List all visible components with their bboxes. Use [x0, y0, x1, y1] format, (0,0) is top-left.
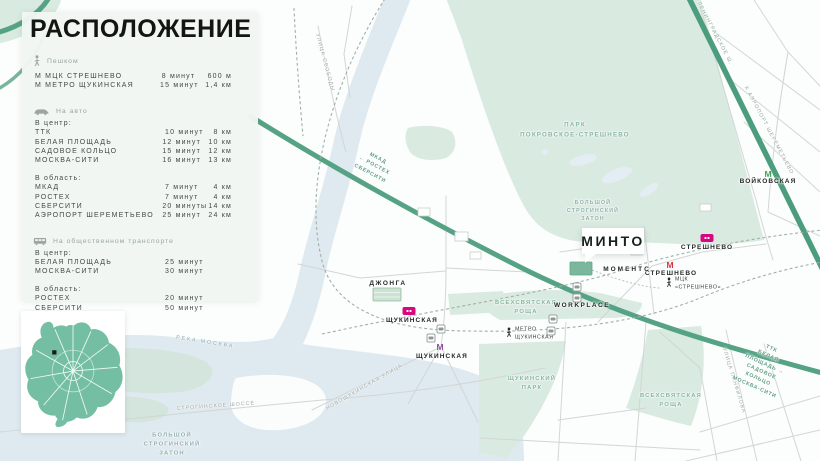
- bus-stop-icon: [437, 325, 446, 334]
- group-label: В область:: [22, 286, 258, 295]
- travel-row: БЕЛАЯ ПЛОЩАДЬ 12 минут 10 км: [22, 139, 258, 148]
- section-header-transit: На общественном транспорте: [22, 237, 258, 246]
- pedestrian-icon: [666, 275, 673, 293]
- section-label: На авто: [56, 108, 88, 115]
- bus-icon: [33, 237, 47, 246]
- group-label: В центр:: [22, 120, 258, 129]
- area-label-park-pokrovskoe: ПАРК ПОКРОВСКОЕ-СТРЕШНЕВО: [520, 120, 630, 139]
- station-label-mck-streshnevo-walk: МЦК «СТРЕШНЕВО»: [675, 276, 721, 291]
- bus-stop-icon: [547, 327, 556, 336]
- location-map-page: ПАРК ПОКРОВСКОЕ-СТРЕШНЕВО БОЛЬШОЙ СТРОГИ…: [0, 0, 820, 461]
- bus-stop-icon: [549, 315, 558, 324]
- travel-row: СБЕРСИТИ 20 минуты 14 км: [22, 203, 258, 212]
- section-label: Пешком: [47, 58, 79, 65]
- place-label-workplace: WORKPLACE: [554, 301, 610, 311]
- minto-building: [570, 262, 592, 275]
- metro-icon-shchukinskaya: М: [436, 343, 443, 352]
- travel-row: АЭРОПОРТ ШЕРЕМЕТЬЕВО 25 минут 24 км: [22, 212, 258, 221]
- section-label: На общественном транспорте: [53, 238, 174, 245]
- travel-row: РОСТЕХ 7 минут 4 км: [22, 194, 258, 203]
- moscow-silhouette: [21, 311, 125, 433]
- section-header-walk: Пешком: [22, 55, 258, 67]
- group-label: В центр:: [22, 250, 258, 259]
- page-title: РАСПОЛОЖЕНИЕ: [30, 17, 258, 42]
- travel-row: РОСТЕХ 20 минут: [22, 295, 258, 304]
- dzhonga-building: [373, 288, 401, 301]
- travel-row: МКАД 7 минут 4 км: [22, 184, 258, 193]
- place-label-dzhonga: ДЖОНГА: [369, 279, 406, 289]
- car-icon: [33, 107, 50, 116]
- bus-stop-icon: [573, 294, 582, 303]
- metro-icon-streshnevo-mck: М: [666, 261, 673, 270]
- station-label-voykovskaya: ВОЙКОВСКАЯ: [740, 177, 797, 187]
- travel-row: М МЦК СТРЕШНЕВО 8 минут 600 м: [22, 73, 258, 82]
- pedestrian-icon: [33, 55, 41, 67]
- minto-callout: МИНТО: [582, 228, 644, 254]
- area-label-shchukinsky-park: ЩУКИНСКИЙ ПАРК: [508, 375, 556, 393]
- station-label-shchukinskaya-d2: ЩУКИНСКАЯ: [386, 316, 438, 326]
- rail-station-icon-shchukinskaya: [403, 307, 416, 315]
- moscow-overview-minimap: [21, 311, 125, 433]
- area-label-zaton-bottom: БОЛЬШОЙ СТРОГИНСКИЙ ЗАТОН: [144, 432, 201, 459]
- travel-row: ТТК 10 минут 8 км: [22, 129, 258, 138]
- bus-stop-icon: [573, 283, 582, 292]
- rail-station-icon-streshnevo: [701, 234, 714, 242]
- bus-stop-icon: [427, 334, 436, 343]
- minto-callout-label: МИНТО: [581, 233, 644, 249]
- group-label: В область:: [22, 175, 258, 184]
- area-label-zaton-top: БОЛЬШОЙ СТРОГИНСКИЙ ЗАТОН: [567, 199, 619, 223]
- travel-row: М МЕТРО ЩУКИНСКАЯ 15 минут 1,4 км: [22, 82, 258, 91]
- station-label-shchukinskaya-metro: ЩУКИНСКАЯ: [416, 352, 468, 362]
- area-label-vsekhsvyatskaya-2: ВСЕХСВЯТСКАЯ РОЩА: [640, 392, 702, 410]
- travel-row: БЕЛАЯ ПЛОЩАДЬ 25 минут: [22, 259, 258, 268]
- travel-row: МОСКВА-СИТИ 30 минут: [22, 268, 258, 277]
- travel-row: МОСКВА-СИТИ 16 минут 13 км: [22, 157, 258, 166]
- area-label-vsekhsvyatskaya-1: ВСЕХСВЯТСКАЯ РОЩА: [495, 299, 557, 317]
- location-info-panel: РАСПОЛОЖЕНИЕ Пешком М МЦК СТРЕШНЕВО 8 ми…: [22, 12, 258, 301]
- section-header-auto: На авто: [22, 107, 258, 116]
- travel-row: САДОВОЕ КОЛЬЦО 15 минут 12 км: [22, 148, 258, 157]
- station-label-streshnevo-d2: СТРЕШНЕВО: [681, 243, 733, 253]
- pedestrian-icon: [506, 325, 513, 343]
- place-label-moments: МОМЕНТС: [603, 265, 651, 275]
- location-marker: [52, 350, 56, 354]
